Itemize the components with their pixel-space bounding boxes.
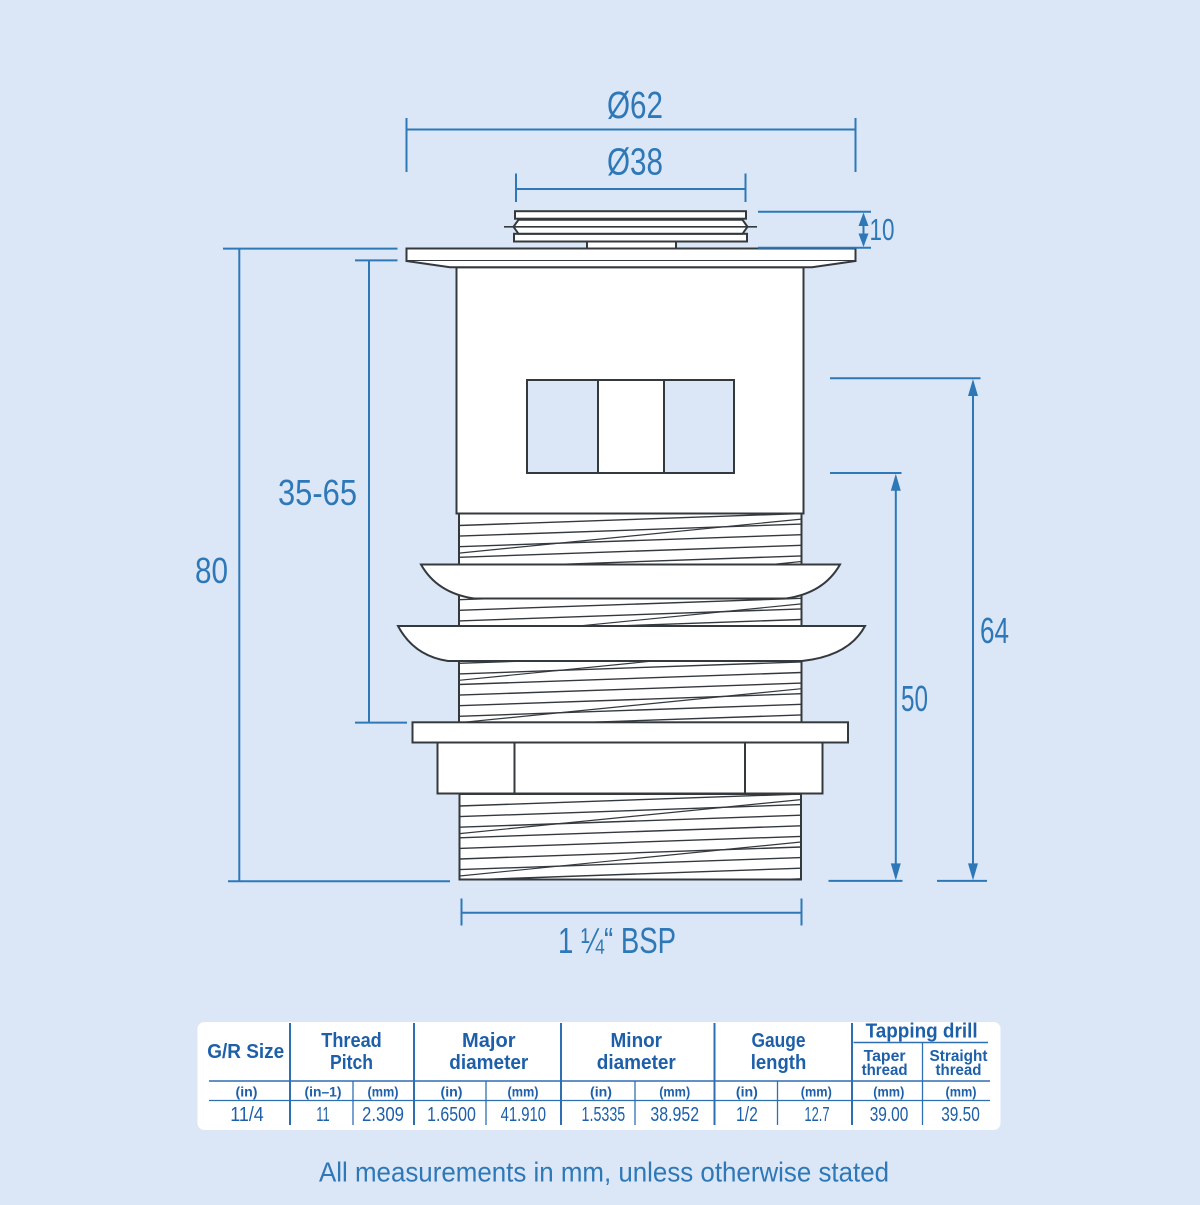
svg-text:length: length xyxy=(751,1052,807,1074)
svg-text:41.910: 41.910 xyxy=(501,1104,546,1126)
svg-text:(in): (in) xyxy=(236,1084,258,1100)
svg-text:thread: thread xyxy=(862,1062,908,1079)
svg-text:1 ¼“ BSP: 1 ¼“ BSP xyxy=(558,920,676,961)
svg-text:11/4: 11/4 xyxy=(230,1104,264,1126)
svg-text:(in): (in) xyxy=(441,1084,463,1100)
svg-text:diameter: diameter xyxy=(597,1052,676,1074)
svg-text:(mm): (mm) xyxy=(508,1084,539,1100)
svg-text:diameter: diameter xyxy=(449,1052,528,1074)
svg-text:10: 10 xyxy=(870,212,895,247)
svg-text:Thread: Thread xyxy=(321,1030,382,1052)
svg-text:Minor: Minor xyxy=(611,1030,663,1052)
svg-text:All measurements in mm, unless: All measurements in mm, unless otherwise… xyxy=(319,1157,889,1188)
svg-text:(mm): (mm) xyxy=(659,1084,690,1100)
svg-text:35-65: 35-65 xyxy=(278,472,357,513)
svg-text:1.6500: 1.6500 xyxy=(427,1104,476,1126)
svg-text:80: 80 xyxy=(195,550,228,591)
svg-text:(mm): (mm) xyxy=(368,1084,399,1100)
svg-text:12.7: 12.7 xyxy=(804,1104,829,1126)
svg-text:(in): (in) xyxy=(736,1084,758,1100)
svg-text:(mm): (mm) xyxy=(946,1084,977,1100)
svg-text:(mm): (mm) xyxy=(873,1084,904,1100)
svg-text:thread: thread xyxy=(936,1062,982,1079)
svg-text:50: 50 xyxy=(901,678,928,719)
svg-text:(mm): (mm) xyxy=(801,1084,832,1100)
svg-text:2.309: 2.309 xyxy=(362,1104,404,1126)
svg-text:39.00: 39.00 xyxy=(870,1104,909,1126)
svg-text:39.50: 39.50 xyxy=(941,1104,980,1126)
svg-text:(in): (in) xyxy=(590,1084,612,1100)
svg-text:Ø62: Ø62 xyxy=(607,85,663,127)
svg-text:1/2: 1/2 xyxy=(736,1104,758,1126)
svg-text:Ø38: Ø38 xyxy=(607,142,663,184)
svg-text:Tapping drill: Tapping drill xyxy=(866,1021,978,1043)
svg-text:11: 11 xyxy=(316,1104,329,1126)
svg-text:38.952: 38.952 xyxy=(650,1104,699,1126)
svg-text:(in–1): (in–1) xyxy=(305,1084,342,1100)
svg-text:1.5335: 1.5335 xyxy=(582,1104,626,1126)
svg-text:G/R Size: G/R Size xyxy=(207,1041,284,1063)
svg-text:64: 64 xyxy=(980,610,1009,651)
svg-text:Pitch: Pitch xyxy=(330,1052,373,1074)
svg-text:Major: Major xyxy=(462,1030,516,1052)
svg-text:Gauge: Gauge xyxy=(752,1030,806,1052)
